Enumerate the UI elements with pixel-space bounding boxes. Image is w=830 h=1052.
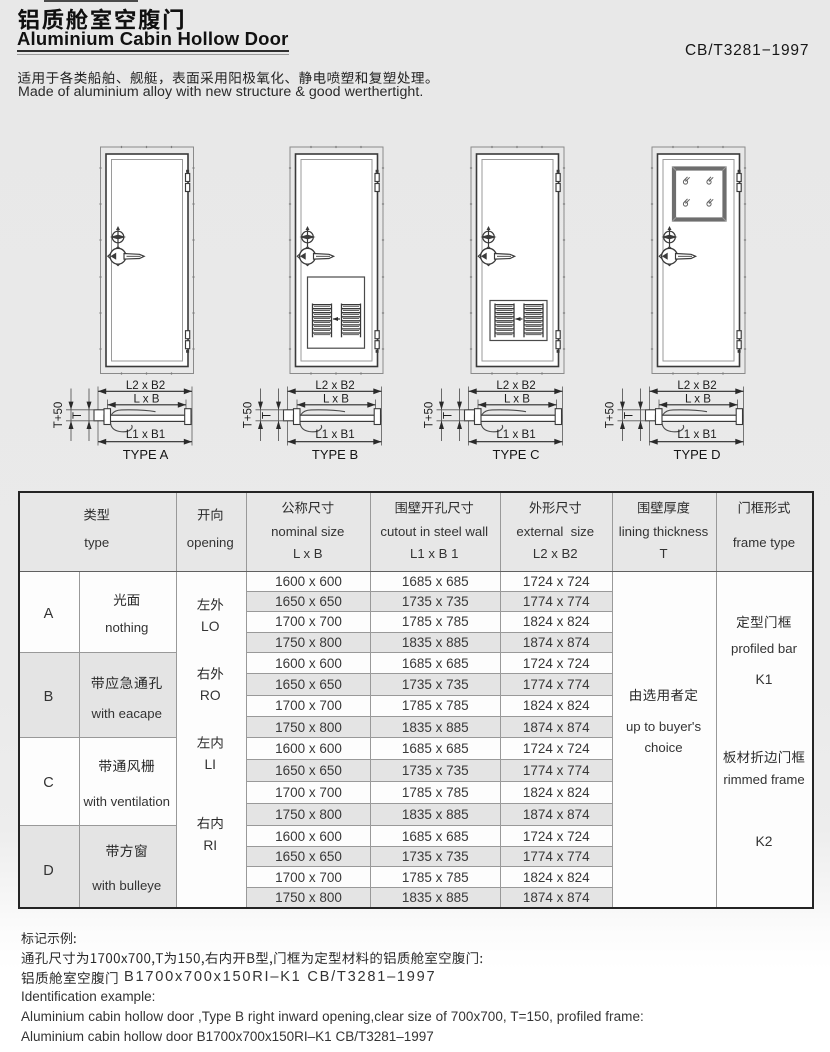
svg-text:TYPE C: TYPE C: [493, 447, 540, 462]
svg-text:T+50: T+50: [424, 402, 436, 429]
svg-text:L2 x B2: L2 x B2: [126, 379, 165, 392]
svg-text:L x B: L x B: [504, 392, 530, 405]
svg-text:L2 x B2: L2 x B2: [315, 379, 354, 392]
svg-text:L1 x B1: L1 x B1: [126, 428, 165, 441]
svg-text:L1 x B1: L1 x B1: [677, 428, 716, 441]
svg-text:T: T: [624, 412, 636, 419]
svg-text:L x B: L x B: [685, 392, 711, 405]
svg-text:T+50: T+50: [53, 402, 65, 429]
svg-text:T: T: [262, 412, 274, 419]
svg-text:L2 x B2: L2 x B2: [496, 379, 535, 392]
svg-text:TYPE D: TYPE D: [674, 447, 721, 462]
svg-text:T: T: [443, 412, 455, 419]
svg-text:L1 x B1: L1 x B1: [496, 428, 535, 441]
svg-text:T+50: T+50: [243, 402, 255, 429]
svg-text:L2 x B2: L2 x B2: [677, 379, 716, 392]
svg-text:TYPE A: TYPE A: [123, 447, 169, 462]
svg-text:L x B: L x B: [323, 392, 349, 405]
svg-text:L x B: L x B: [134, 392, 160, 405]
svg-text:T: T: [72, 412, 84, 419]
svg-text:T+50: T+50: [605, 402, 617, 429]
svg-text:TYPE B: TYPE B: [312, 447, 358, 462]
svg-text:L1 x B1: L1 x B1: [315, 428, 354, 441]
